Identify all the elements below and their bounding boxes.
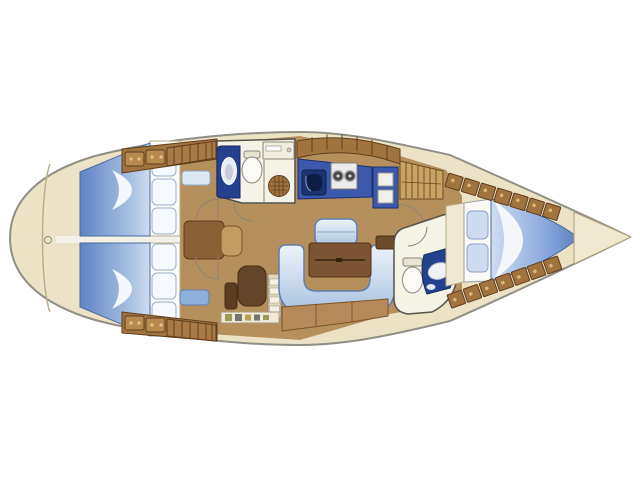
fridge-cabinet [373,167,398,208]
fridge-lid [378,190,393,203]
shelf-item [266,146,281,151]
locker-knob [159,155,162,158]
pillow [467,211,488,239]
locker [125,152,144,166]
step [270,279,280,285]
stove [331,163,357,189]
faucet [287,148,291,152]
floorplan-canvas [0,0,640,480]
pillow [152,179,176,205]
nav-seat [238,266,266,306]
table-latch [336,258,342,262]
locker-knob [137,157,140,160]
burner-center [349,175,352,178]
locker-knob [150,155,153,158]
locker [125,316,144,330]
pillow [152,273,176,299]
corridor-cushion [180,290,209,305]
pillow [152,208,176,234]
panel-switch [254,315,260,321]
panel-switch [245,315,251,321]
pillow [467,244,488,272]
chart-table [184,221,224,259]
soap-dish [427,284,436,290]
step [270,288,280,294]
toilet [403,267,423,293]
panel-switch [235,314,242,321]
pillow [152,244,176,270]
yacht-floorplan-svg [0,0,640,480]
instrument-panel [221,312,279,323]
locker-knob [159,323,162,326]
locker-knob [137,321,140,324]
galley [297,134,400,208]
step [270,306,280,312]
burner-center [337,175,340,178]
aft-cabin-bulkhead-gap [56,236,180,243]
sink-basin [225,164,233,180]
locker-knob [129,321,132,324]
locker-knob [150,323,153,326]
anchor-locker [574,212,631,264]
nav-side-locker [225,283,237,309]
corridor-shelf [182,171,210,185]
dresser [446,203,464,286]
step [270,297,280,303]
navigator-seat [221,226,242,256]
panel-switch [225,314,232,321]
fridge-lid [378,173,393,186]
panel-switch [263,315,269,320]
locker-knob [129,157,132,160]
toilet-tank [403,258,422,266]
stern-fitting [45,237,52,244]
yacht-floorplan [10,132,631,345]
toilet [242,157,262,183]
